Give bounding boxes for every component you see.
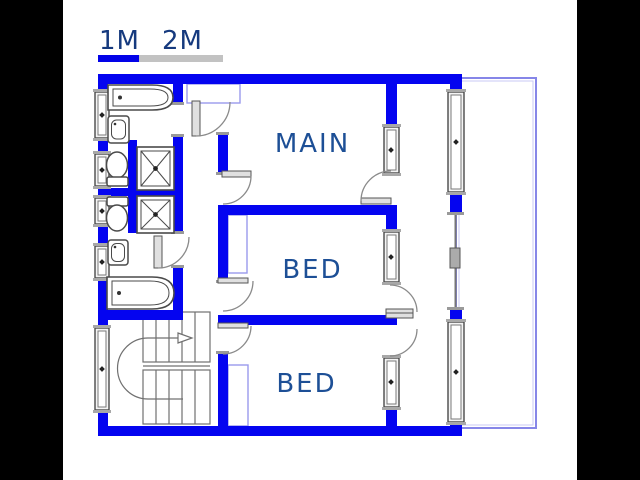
window xyxy=(382,229,401,285)
toilet xyxy=(107,152,129,186)
wall-stair-divider xyxy=(98,310,183,320)
window xyxy=(382,355,401,410)
door-bed-bottom-entry xyxy=(218,323,251,354)
room-label-bed-middle: BED xyxy=(275,255,350,285)
shower xyxy=(137,147,174,190)
bathroom-bottom-fixtures xyxy=(107,196,175,309)
window xyxy=(382,124,401,176)
wall-bottom xyxy=(98,426,462,436)
bathtub xyxy=(108,85,173,110)
room-label-bed-bottom: BED xyxy=(269,369,344,399)
door-bathroom-bottom xyxy=(154,236,189,268)
stair-walk-line xyxy=(118,338,184,399)
door-bed-middle-balcony xyxy=(386,285,417,314)
shower xyxy=(137,196,174,233)
plan-drawing xyxy=(0,0,640,480)
balcony-railing xyxy=(447,212,464,310)
wall-hall-c xyxy=(218,354,228,436)
door-bed-middle-entry xyxy=(218,278,253,311)
floorplan-screenshot: 1M 2M xyxy=(0,0,640,480)
door-main-entry xyxy=(222,171,251,204)
closet-bed-bottom xyxy=(228,365,248,426)
closet-main xyxy=(187,84,240,103)
wall-hall-b xyxy=(218,205,228,283)
toilet xyxy=(107,197,129,231)
sink xyxy=(108,116,129,143)
wall-top xyxy=(98,74,462,84)
balcony-outline xyxy=(456,78,536,428)
wall-bath-stub xyxy=(128,140,137,233)
window xyxy=(446,319,466,425)
staircase xyxy=(118,312,211,424)
window xyxy=(93,325,111,413)
window xyxy=(446,89,466,195)
sink xyxy=(108,240,128,265)
wall-main-bed-divider xyxy=(218,205,397,215)
wall-bath1-right-a xyxy=(173,80,183,105)
stair-lower-flight xyxy=(143,370,210,424)
wall-hall-a xyxy=(218,135,228,175)
closet-bed-middle xyxy=(228,215,247,273)
stair-direction-arrow xyxy=(178,333,192,343)
bathroom-top-fixtures xyxy=(107,85,175,190)
bathtub xyxy=(107,277,174,309)
door-bathroom-top xyxy=(192,101,230,136)
room-label-main: MAIN xyxy=(270,129,355,159)
